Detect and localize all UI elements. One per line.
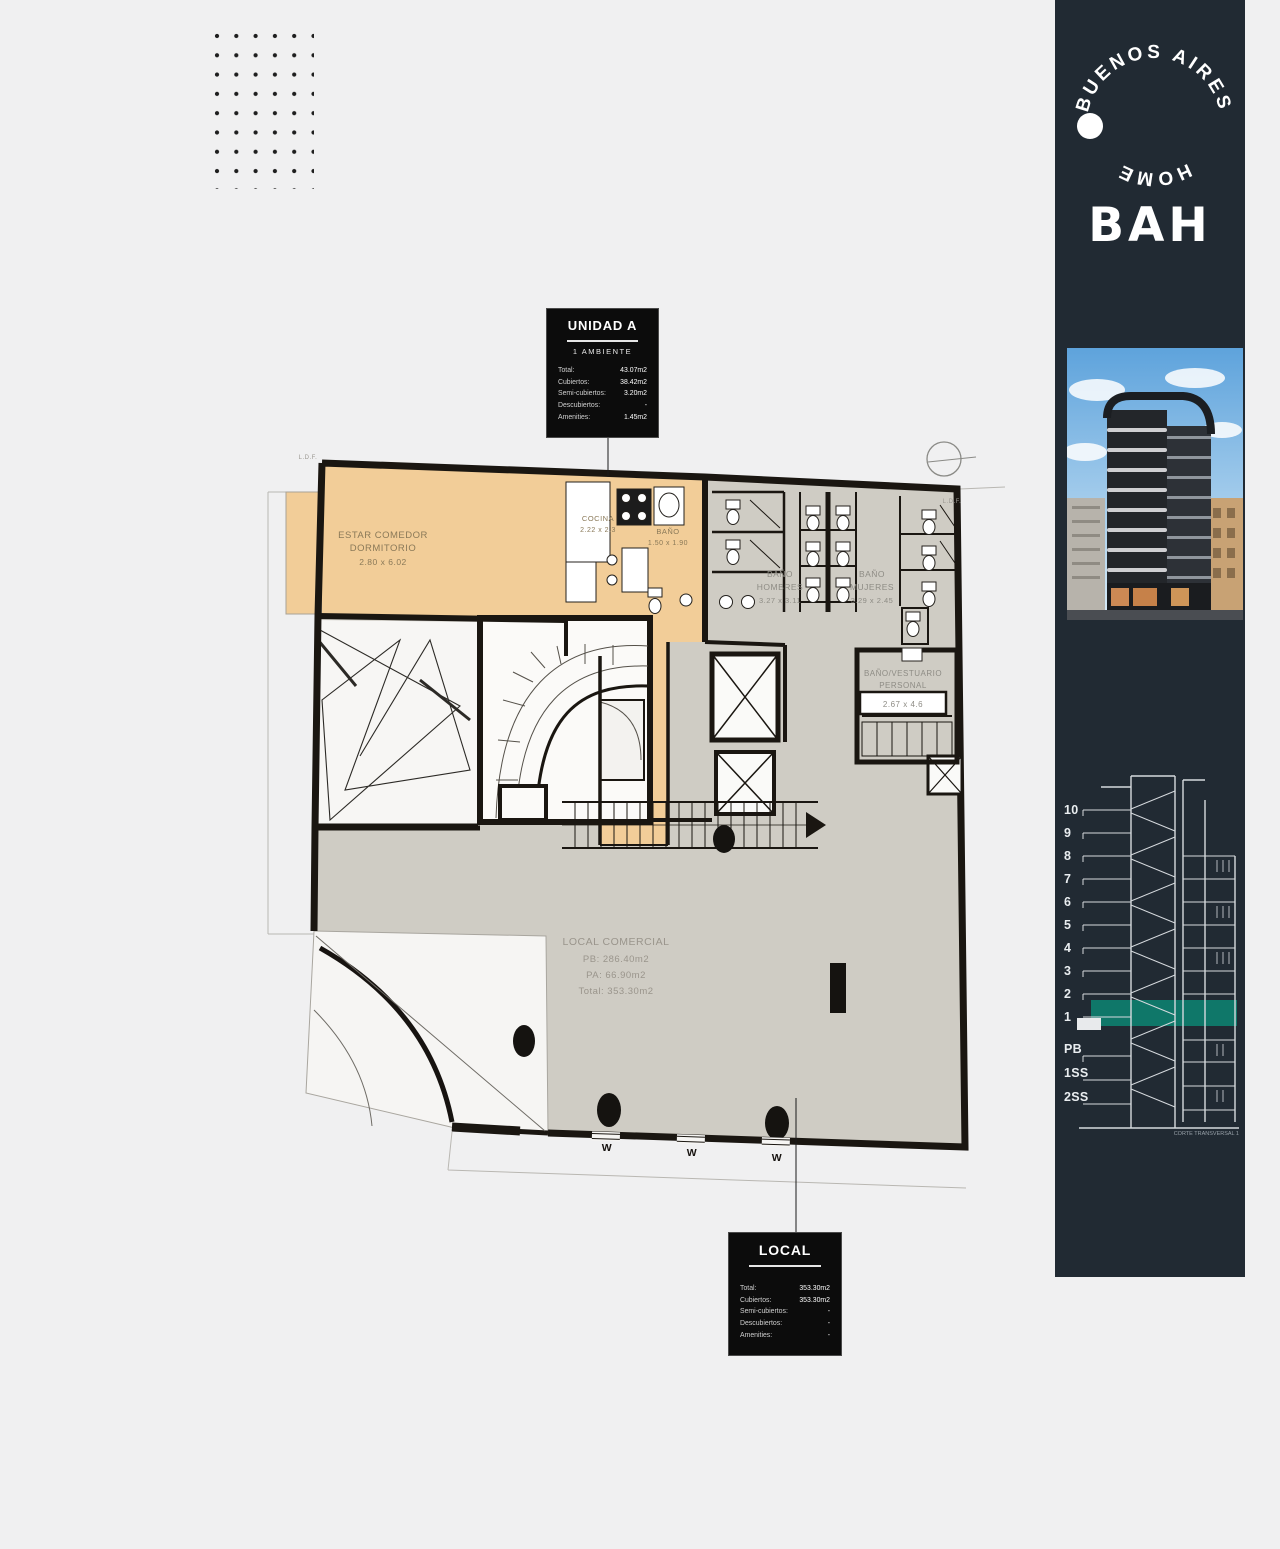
stat-value: -: [828, 1306, 830, 1318]
stat-row: Total: 43.07m2: [558, 365, 647, 377]
void-area: [316, 620, 478, 826]
neighbor-building-right: [1207, 498, 1243, 620]
room-dims: 1.50 x 1.90: [648, 540, 688, 547]
room-dims: 2.22 x 2.3: [580, 527, 616, 534]
svg-text:BUENOS AIRES: BUENOS AIRES: [1072, 42, 1235, 115]
stat-value: 353.30m2: [799, 1295, 830, 1307]
floor-label-4: 4: [1064, 941, 1098, 955]
card-divider: [749, 1265, 821, 1267]
logo-arc-bottom-text: HOME: [1113, 159, 1194, 189]
stat-label: Cubiertos:: [740, 1295, 771, 1307]
stove-icon: [617, 489, 651, 525]
unidad-a-card: UNIDAD A 1 AMBIENTE Total: 43.07m2 Cubie…: [546, 308, 659, 438]
stat-row: Semi-cubiertos: -: [740, 1306, 830, 1318]
window-mark: W: [602, 1142, 612, 1154]
stat-row: Cubiertos: 353.30m2: [740, 1295, 830, 1307]
bah-circle-logo: BUENOS AIRES HOME: [1067, 28, 1237, 198]
corner-note: L.D.F.: [943, 499, 962, 505]
room-dims: 3.27 x 3.11: [759, 596, 801, 605]
brochure-page: { "page": { "background": "#f0f0f1" }, "…: [0, 0, 1280, 1549]
floor-label-2ss: 2SS: [1064, 1090, 1098, 1104]
room-stat: PA: 66.90m2: [586, 970, 646, 981]
window-mark: W: [687, 1147, 697, 1159]
stat-label: Semi-cubiertos:: [740, 1306, 788, 1318]
stat-value: -: [828, 1330, 830, 1342]
floor-label-9: 9: [1064, 826, 1098, 840]
logo-arc-top-text: BUENOS AIRES: [1072, 42, 1235, 115]
stat-label: Total:: [558, 365, 574, 377]
stat-value: -: [645, 400, 647, 412]
room-label: LOCAL COMERCIAL: [563, 936, 670, 948]
stat-row: Descubiertos: -: [740, 1318, 830, 1330]
logo-dot-icon: [1077, 113, 1103, 139]
card-stats: Total: 353.30m2 Cubiertos: 353.30m2 Semi…: [735, 1283, 835, 1342]
card-title: UNIDAD A: [553, 318, 652, 333]
compass-icon: [927, 442, 976, 476]
highlighted-floor-band: [1091, 1000, 1237, 1026]
building-rendering-image: [1067, 348, 1243, 620]
window-mark: W: [772, 1152, 782, 1164]
section-caption: CORTE TRANSVERSAL 1: [1174, 1131, 1239, 1137]
card-subtitle: 1 AMBIENTE: [553, 347, 652, 356]
basin-icon: [680, 594, 692, 606]
floor-label-8: 8: [1064, 849, 1098, 863]
room-dims: 2.80 x 6.02: [359, 557, 407, 567]
stat-label: Descubiertos:: [558, 400, 600, 412]
room-label: BAÑO/VESTUARIO: [864, 669, 942, 678]
room-label: BAÑO: [656, 527, 679, 536]
stat-row: Descubiertos: -: [558, 400, 647, 412]
stat-value: -: [828, 1318, 830, 1330]
brand-sidebar: BUENOS AIRES HOME BAH: [1055, 0, 1245, 1277]
room-dims: 2.67 x 4.6: [883, 700, 923, 709]
room-dims: 3.29 x 2.45: [851, 596, 894, 605]
stat-row: Semi-cubiertos: 3.20m2: [558, 388, 647, 400]
room-label: MUJERES: [850, 582, 894, 592]
svg-text:HOME: HOME: [1113, 159, 1194, 189]
basin-icon: [742, 596, 755, 609]
stat-value: 38.42m2: [620, 377, 647, 389]
card-stats: Total: 43.07m2 Cubiertos: 38.42m2 Semi-c…: [553, 365, 652, 424]
basin-icon: [720, 596, 733, 609]
room-label: BAÑO: [767, 569, 793, 579]
section-lines: [1079, 776, 1239, 1128]
local-card: LOCAL Total: 353.30m2 Cubiertos: 353.30m…: [728, 1232, 842, 1356]
floor-label-6: 6: [1064, 895, 1098, 909]
stat-label: Amenities:: [740, 1330, 772, 1342]
stat-value: 353.30m2: [799, 1283, 830, 1295]
stat-row: Total: 353.30m2: [740, 1283, 830, 1295]
room-label: DORMITORIO: [350, 543, 417, 554]
floor-label-1: 1: [1064, 1010, 1098, 1024]
card-title: LOCAL: [735, 1242, 835, 1258]
floor-label-3: 3: [1064, 964, 1098, 978]
floor-label-2: 2: [1064, 987, 1098, 1001]
stat-label: Total:: [740, 1283, 756, 1295]
stat-label: Descubiertos:: [740, 1318, 782, 1330]
stat-label: Semi-cubiertos:: [558, 388, 606, 400]
room-label: PERSONAL: [879, 681, 927, 690]
floor-label-1ss: 1SS: [1064, 1066, 1098, 1080]
room-label: HOMBRES: [757, 582, 803, 592]
neighbor-building-left: [1067, 498, 1105, 620]
room-stat: Total: 353.30m2: [578, 986, 653, 997]
stat-value: 43.07m2: [620, 365, 647, 377]
stat-row: Cubiertos: 38.42m2: [558, 377, 647, 389]
stat-row: Amenities: -: [740, 1330, 830, 1342]
room-label: COCINA: [582, 514, 614, 523]
stat-label: Cubiertos:: [558, 377, 589, 389]
floor-label-5: 5: [1064, 918, 1098, 932]
stat-value: 1.45m2: [624, 412, 647, 424]
street: [1067, 610, 1243, 620]
basin-icon: [902, 648, 922, 661]
stat-value: 3.20m2: [624, 388, 647, 400]
stat-row: Amenities: 1.45m2: [558, 412, 647, 424]
corner-note: L.D.F.: [299, 455, 318, 461]
bah-wordmark: BAH: [1055, 198, 1245, 253]
room-label: BAÑO: [859, 569, 885, 579]
stat-label: Amenities:: [558, 412, 590, 424]
room-label: ESTAR COMEDOR: [338, 530, 428, 541]
room-stat: PB: 286.40m2: [583, 954, 649, 965]
floor-label-10: 10: [1064, 803, 1098, 817]
card-divider: [567, 340, 638, 342]
main-building: [1107, 396, 1211, 611]
toilet-icon: [648, 588, 662, 597]
floor-label-7: 7: [1064, 872, 1098, 886]
floor-label-pb: PB: [1064, 1042, 1098, 1056]
